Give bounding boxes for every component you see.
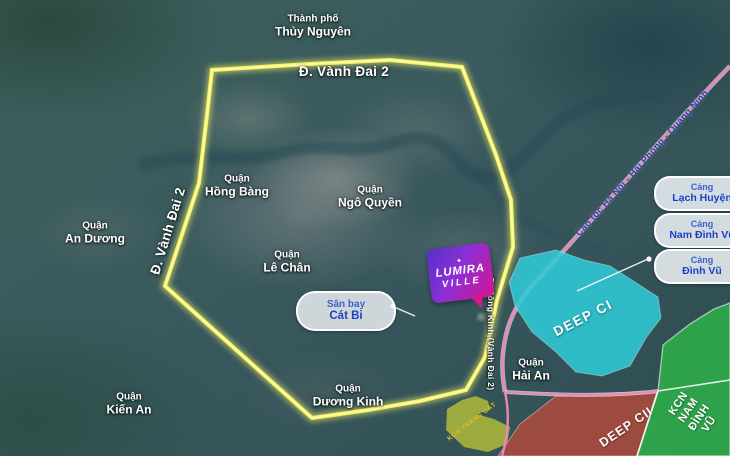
project-logo-lumira-ville: ✦ LUMIRA VILLE bbox=[426, 242, 495, 303]
airport-badge-prefix: Sân bay bbox=[327, 299, 365, 310]
city-label-name: Thủy Nguyên bbox=[275, 25, 351, 39]
satellite-map: Thành phố Thủy Nguyên Quận Hồng Bàng Quậ… bbox=[0, 0, 730, 456]
city-label-prefix: Thành phố bbox=[275, 13, 351, 25]
airport-badge-name: Cát Bi bbox=[329, 310, 362, 323]
label-district-le-chan: Quận Lê Chân bbox=[263, 249, 310, 274]
label-city-thuy-nguyen: Thành phố Thủy Nguyên bbox=[275, 13, 351, 38]
zone-kcn-trang-cat bbox=[446, 396, 510, 452]
label-district-hai-an: Quận Hải An bbox=[512, 357, 550, 382]
label-district-duong-kinh: Quận Dương Kinh bbox=[313, 383, 384, 408]
dinh-vu-leader-dot bbox=[646, 256, 651, 261]
label-district-hong-bang: Quận Hồng Bàng bbox=[205, 173, 269, 198]
ring-road-glow bbox=[165, 60, 513, 418]
ring-road-core bbox=[165, 60, 513, 418]
airport-leader-line bbox=[394, 307, 415, 316]
ring-road bbox=[165, 60, 513, 418]
port-badge-nam-dinh-vu: Cảng Nam Đình Vũ bbox=[654, 213, 730, 248]
airport-badge-cat-bi: Sân bay Cát Bi bbox=[296, 291, 396, 331]
label-ring-road-top: Đ. Vành Đai 2 bbox=[299, 64, 389, 80]
label-district-ngo-quyen: Quận Ngô Quyền bbox=[338, 184, 402, 209]
port-badge-lach-huyen: Cảng Lạch Huyện bbox=[654, 176, 730, 211]
project-location-dot bbox=[479, 315, 484, 320]
port-badge-dinh-vu: Cảng Đình Vũ bbox=[654, 249, 730, 284]
label-district-an-duong: Quận An Dương bbox=[65, 220, 125, 245]
river bbox=[140, 96, 665, 177]
label-district-kien-an: Quận Kiến An bbox=[107, 391, 152, 416]
